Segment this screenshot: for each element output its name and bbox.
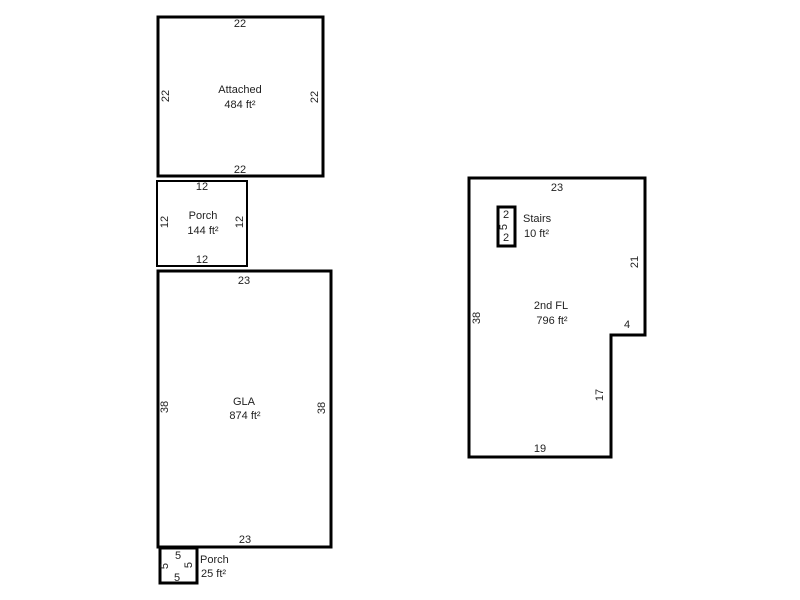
gla-outline [158,271,331,547]
attached-area-label: Attached [218,84,261,96]
small-porch-right-dimension: 5 [183,562,195,568]
second-floor-area-label: 2nd FL [534,300,568,312]
porch-bottom-dimension: 12 [196,254,208,266]
attached-bottom-dimension: 22 [234,164,246,176]
gla-top-dimension: 23 [238,275,250,287]
porch-right-dimension: 12 [234,216,246,228]
small-porch-left-dimension: 5 [159,563,171,569]
stairs-bottom-dimension: 2 [503,232,509,244]
gla-left-dimension: 38 [159,401,171,413]
canvas-background [0,0,800,600]
stairs-area-label: Stairs [523,213,552,225]
second-floor-notch-dimension: 4 [624,319,630,331]
floorplan-svg: 22 22 22 22 Attached 484 ft² 12 12 12 12… [0,0,800,600]
small-porch-bottom-dimension: 5 [174,572,180,584]
second-floor-left-dimension: 38 [471,312,483,324]
porch-area-label: Porch [189,210,218,222]
porch-top-dimension: 12 [196,181,208,193]
attached-left-dimension: 22 [160,90,172,102]
attached-right-dimension: 22 [309,91,321,103]
gla-area-value: 874 ft² [229,410,261,422]
attached-top-dimension: 22 [234,18,246,30]
stairs-top-dimension: 2 [503,209,509,221]
second-floor-area-value: 796 ft² [536,315,568,327]
first-floor-sketch: 22 22 22 22 Attached 484 ft² 12 12 12 12… [157,17,331,584]
attached-area-value: 484 ft² [224,99,256,111]
second-floor-bottom-dimension: 19 [534,443,546,455]
attached-garage-outline [158,17,323,176]
small-porch-area-value: 25 ft² [201,568,226,580]
small-porch-top-dimension: 5 [175,550,181,562]
porch-left-dimension: 12 [159,216,171,228]
second-floor-top-dimension: 23 [551,182,563,194]
second-floor-right-upper-dimension: 21 [629,256,641,268]
second-floor-right-lower-dimension: 17 [594,389,606,401]
floorplan-sketch-page: 22 22 22 22 Attached 484 ft² 12 12 12 12… [0,0,800,600]
porch-area-value: 144 ft² [187,225,219,237]
small-porch-area-label: Porch [200,554,229,566]
stairs-side-dimension: 5 [498,224,510,230]
gla-bottom-dimension: 23 [239,534,251,546]
gla-area-label: GLA [233,396,256,408]
stairs-area-value: 10 ft² [524,228,549,240]
gla-right-dimension: 38 [316,402,328,414]
